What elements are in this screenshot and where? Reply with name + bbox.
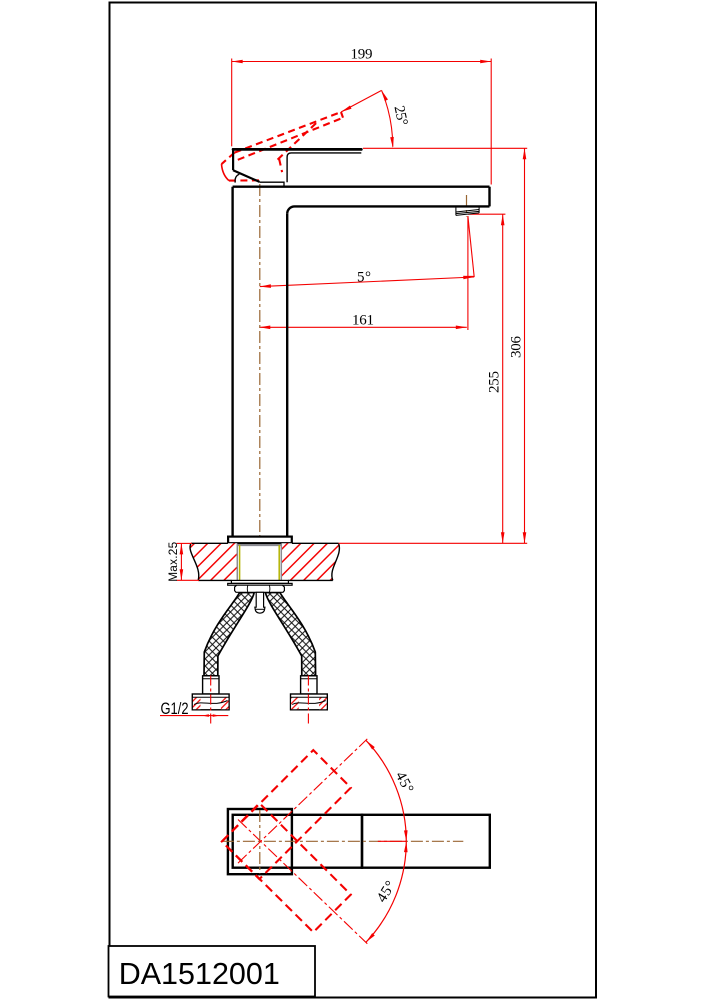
svg-text:306: 306	[509, 336, 525, 359]
svg-text:255: 255	[487, 371, 503, 393]
svg-text:5°: 5°	[357, 270, 371, 286]
svg-text:161: 161	[352, 312, 374, 328]
svg-text:199: 199	[351, 47, 373, 63]
svg-text:DA1512001: DA1512001	[119, 957, 280, 991]
svg-text:G1/2: G1/2	[161, 699, 189, 718]
svg-text:Max.25: Max.25	[166, 541, 180, 581]
